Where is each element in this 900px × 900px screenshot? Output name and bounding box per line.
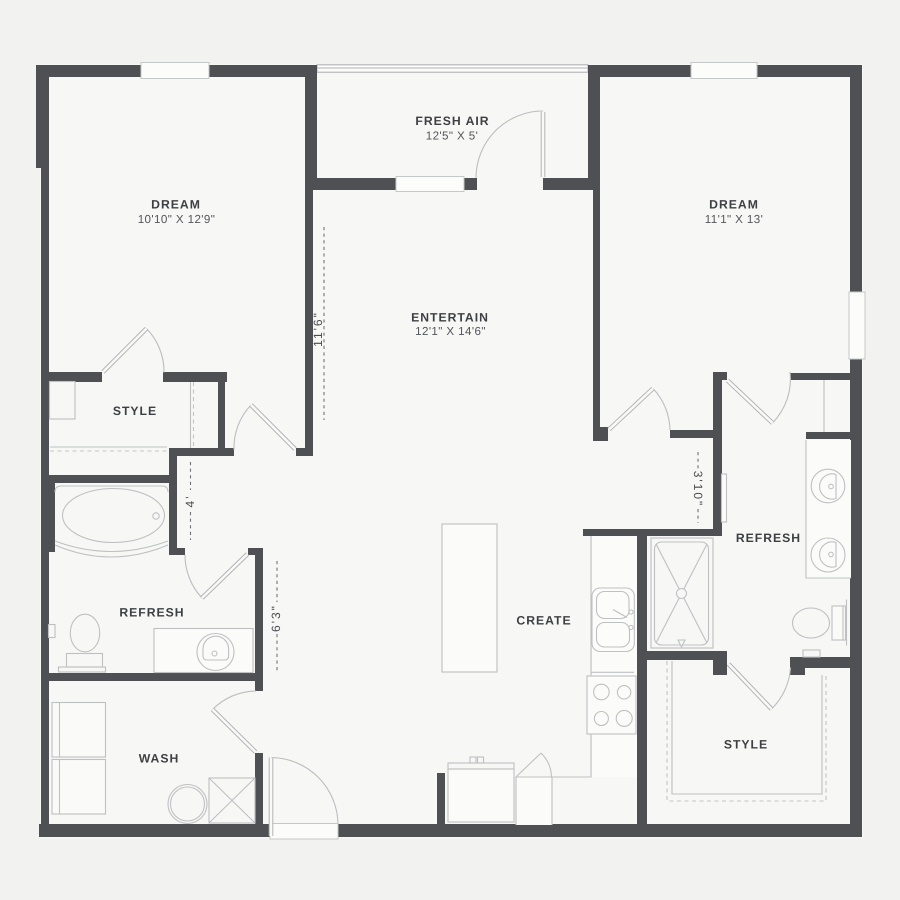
svg-text:CREATE: CREATE <box>516 614 571 628</box>
svg-text:3'10": 3'10" <box>691 471 705 508</box>
svg-text:10'10" X 12'9": 10'10" X 12'9" <box>138 213 216 226</box>
svg-text:REFRESH: REFRESH <box>736 531 801 545</box>
svg-text:WASH: WASH <box>139 752 180 766</box>
svg-text:6'3": 6'3" <box>269 604 283 632</box>
svg-text:ENTERTAIN: ENTERTAIN <box>411 311 489 325</box>
svg-text:11'1" X 13': 11'1" X 13' <box>705 213 764 226</box>
svg-text:DREAM: DREAM <box>709 198 759 212</box>
svg-text:STYLE: STYLE <box>724 738 768 752</box>
svg-text:11'6": 11'6" <box>311 311 325 347</box>
svg-text:12'1" X 14'6": 12'1" X 14'6" <box>415 325 486 338</box>
svg-text:FRESH AIR: FRESH AIR <box>415 114 489 128</box>
svg-text:REFRESH: REFRESH <box>119 606 184 620</box>
svg-text:12'5" X 5': 12'5" X 5' <box>426 130 479 143</box>
svg-text:DREAM: DREAM <box>151 198 201 212</box>
svg-text:STYLE: STYLE <box>113 404 157 418</box>
svg-text:4': 4' <box>183 495 197 508</box>
